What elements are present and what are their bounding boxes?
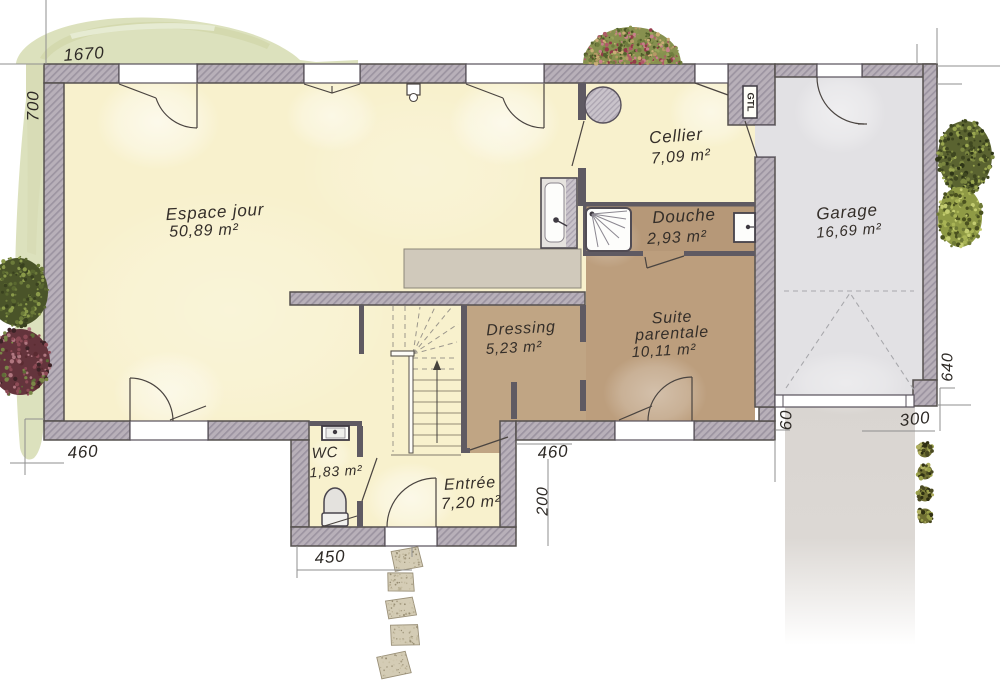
svg-text:GTL: GTL bbox=[745, 93, 756, 112]
svg-text:Entrée: Entrée bbox=[444, 474, 497, 494]
svg-text:450: 450 bbox=[314, 546, 346, 567]
svg-text:700: 700 bbox=[24, 91, 43, 122]
svg-text:60: 60 bbox=[777, 410, 796, 431]
svg-text:50,89 m²: 50,89 m² bbox=[169, 221, 239, 240]
svg-text:Douche: Douche bbox=[652, 205, 716, 227]
svg-text:200: 200 bbox=[535, 486, 552, 516]
svg-text:1,83 m²: 1,83 m² bbox=[309, 462, 363, 481]
svg-text:2,93 m²: 2,93 m² bbox=[646, 228, 708, 248]
svg-text:10,11 m²: 10,11 m² bbox=[631, 341, 696, 361]
svg-text:1670: 1670 bbox=[63, 43, 105, 65]
svg-text:640: 640 bbox=[940, 352, 957, 381]
svg-text:Cellier: Cellier bbox=[649, 125, 705, 148]
svg-text:460: 460 bbox=[537, 441, 569, 462]
svg-text:Dressing: Dressing bbox=[486, 319, 556, 340]
svg-text:300: 300 bbox=[899, 408, 932, 430]
svg-text:WC: WC bbox=[311, 444, 338, 462]
svg-text:5,23 m²: 5,23 m² bbox=[485, 338, 542, 358]
svg-text:7,20 m²: 7,20 m² bbox=[441, 493, 502, 513]
svg-text:460: 460 bbox=[67, 441, 99, 462]
